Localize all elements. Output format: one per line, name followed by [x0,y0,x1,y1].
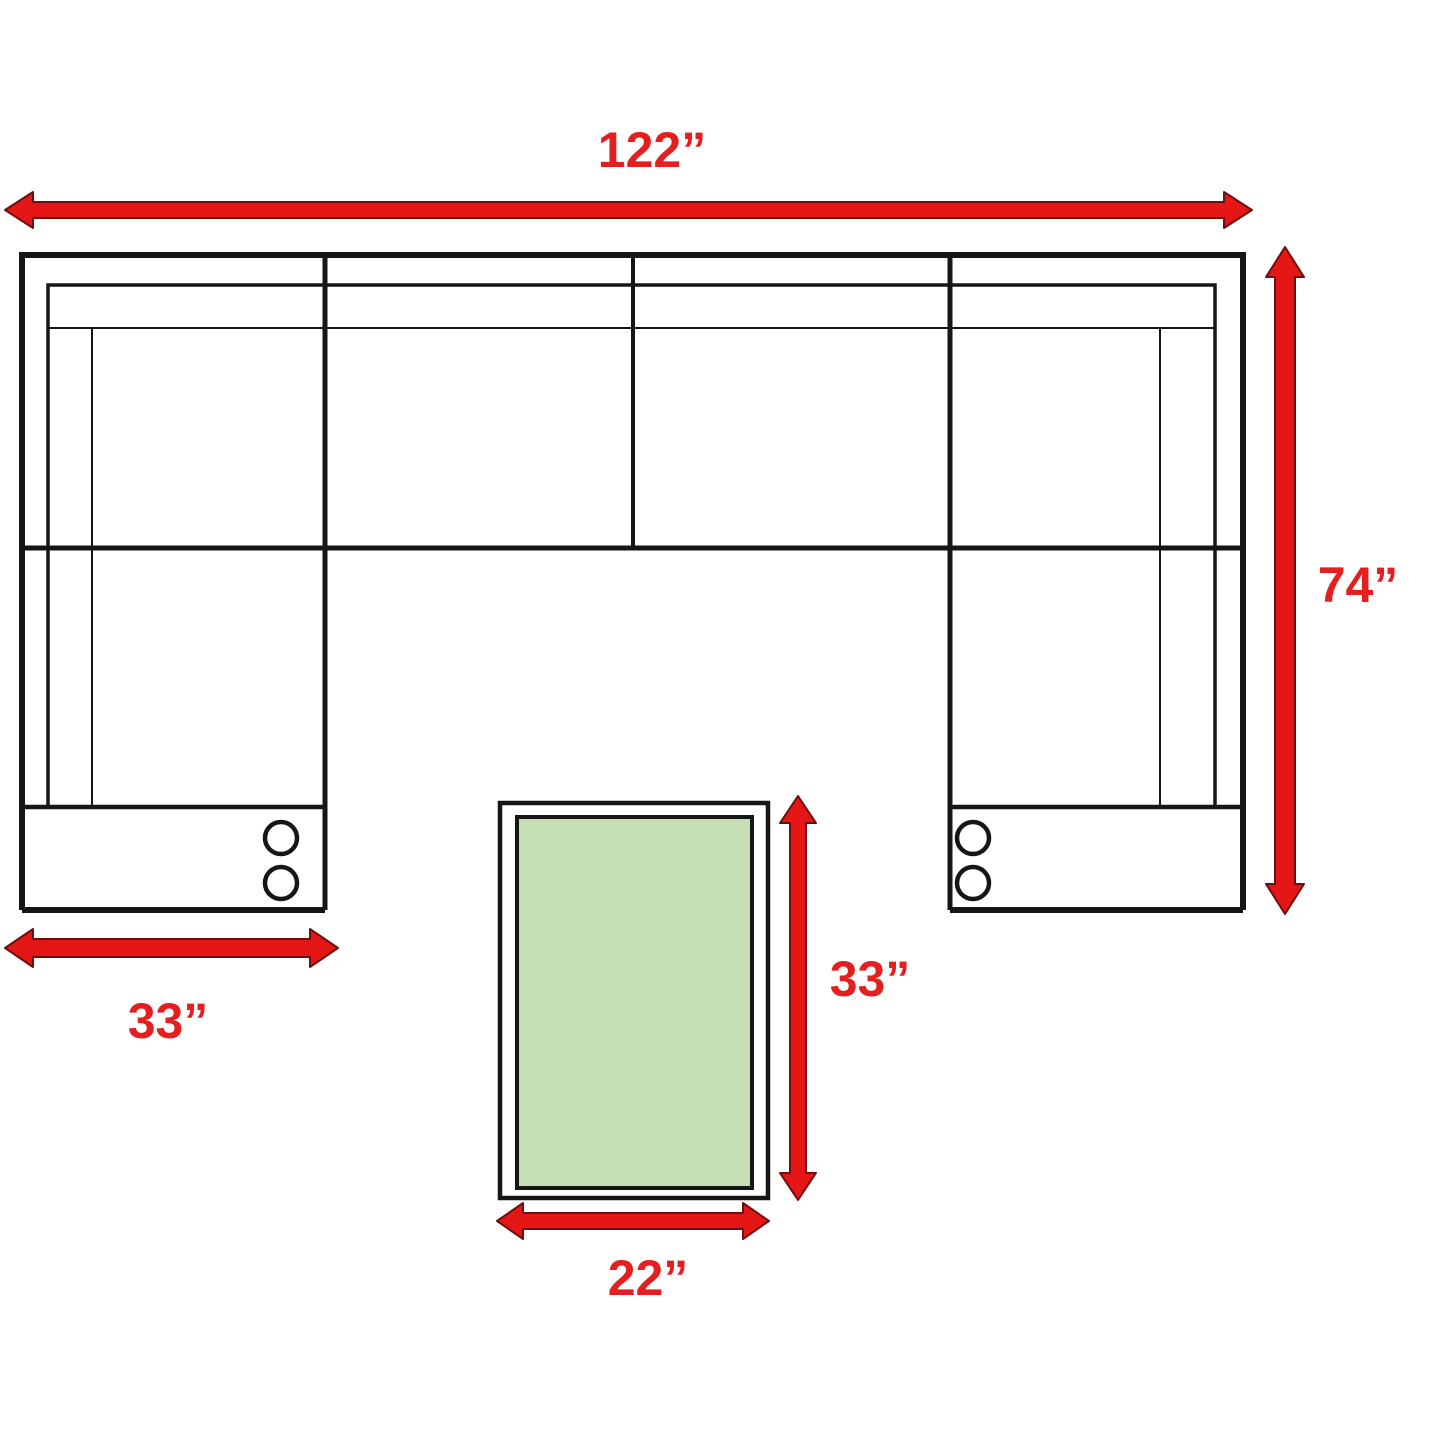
table-width-label: 22” [608,1250,689,1306]
table-width-arrow [497,1203,769,1239]
cup-holder-icon [265,867,297,899]
chaise-width-arrow [5,929,338,967]
sofa-width-arrow [5,192,1252,228]
chaise-width-label: 33” [128,993,209,1049]
coffee-table-top [517,817,752,1188]
coffee-table [500,803,768,1198]
sofa-width-label: 122” [598,122,706,178]
table-length-label: 33” [830,951,911,1007]
cup-holder-icon [957,822,989,854]
floorplan-canvas: 122” 74” 33” 33” 22” [0,0,1445,1445]
dimension-diagram: 122” 74” 33” 33” 22” [0,0,1445,1445]
sofa-depth-label: 74” [1318,557,1399,613]
sofa-depth-arrow [1266,247,1304,914]
table-length-arrow [780,796,816,1200]
cup-holder-icon [957,867,989,899]
cup-holder-icon [265,822,297,854]
